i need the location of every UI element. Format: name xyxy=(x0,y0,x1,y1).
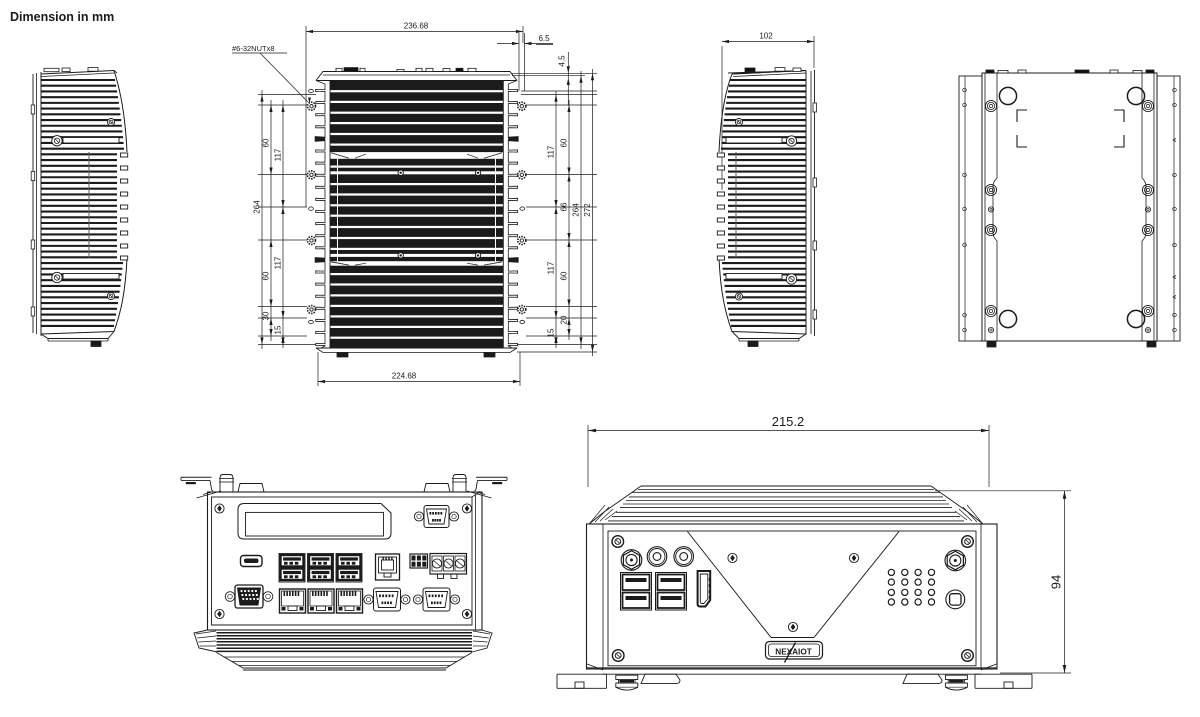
svg-text:117: 117 xyxy=(274,256,283,269)
svg-text:60: 60 xyxy=(560,138,569,147)
svg-text:4.5: 4.5 xyxy=(558,55,567,67)
svg-text:60: 60 xyxy=(262,138,271,147)
svg-text:272: 272 xyxy=(583,203,592,217)
svg-text:224.68: 224.68 xyxy=(392,372,417,381)
svg-text:66: 66 xyxy=(560,202,569,211)
svg-text:#6-32NUTx8: #6-32NUTx8 xyxy=(232,44,275,53)
svg-text:117: 117 xyxy=(547,145,556,158)
svg-text:215.2: 215.2 xyxy=(772,414,805,429)
svg-text:6.5: 6.5 xyxy=(538,34,550,43)
svg-text:102: 102 xyxy=(759,32,773,41)
svg-text:30: 30 xyxy=(262,311,271,320)
svg-text:60: 60 xyxy=(560,271,569,280)
svg-text:94: 94 xyxy=(1049,575,1064,589)
svg-text:117: 117 xyxy=(547,261,556,274)
svg-text:NEXAIOT: NEXAIOT xyxy=(775,648,811,657)
svg-text:264: 264 xyxy=(253,200,262,214)
svg-text:264: 264 xyxy=(572,203,581,217)
svg-text:20: 20 xyxy=(560,315,569,324)
svg-text:236.68: 236.68 xyxy=(404,22,429,31)
svg-text:15: 15 xyxy=(547,328,556,337)
svg-text:Dimension in mm: Dimension in mm xyxy=(10,10,114,24)
svg-text:15: 15 xyxy=(274,325,283,334)
svg-text:60: 60 xyxy=(262,271,271,280)
svg-text:117: 117 xyxy=(274,148,283,161)
